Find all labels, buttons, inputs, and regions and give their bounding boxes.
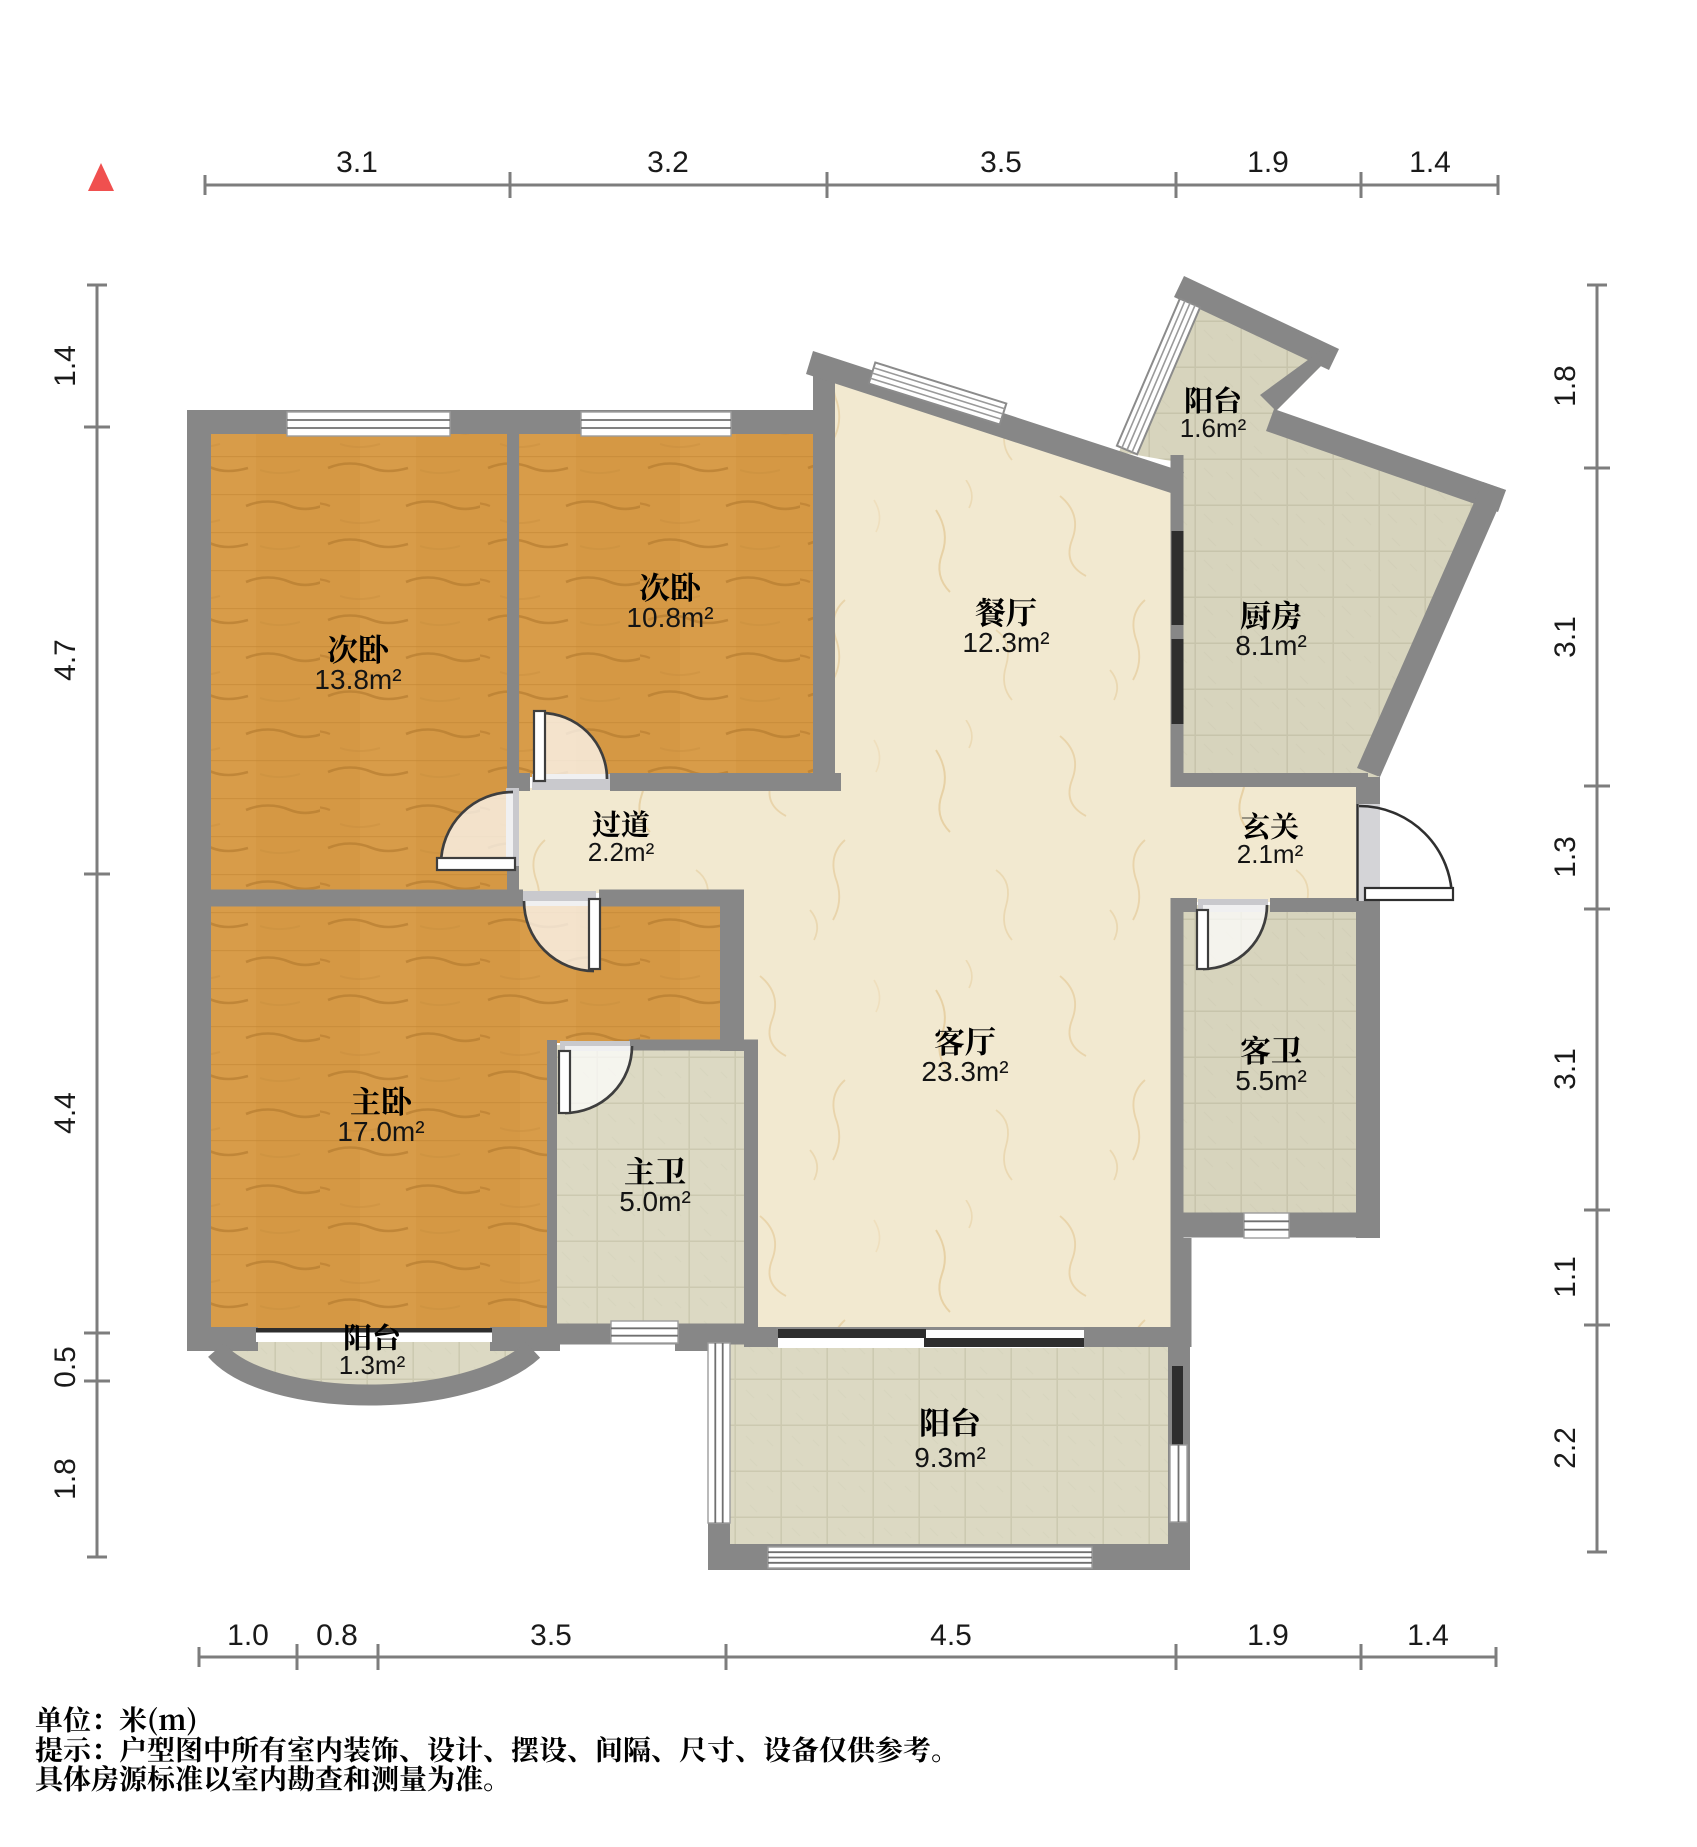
svg-text:3.5: 3.5 <box>530 1619 572 1652</box>
svg-text:1.3m²: 1.3m² <box>339 1350 406 1380</box>
svg-text:1.0: 1.0 <box>227 1619 269 1652</box>
svg-text:3.2: 3.2 <box>647 146 689 179</box>
svg-text:8.1m²: 8.1m² <box>1235 630 1307 661</box>
svg-text:0.5: 0.5 <box>49 1346 82 1388</box>
svg-text:1.4: 1.4 <box>49 345 82 387</box>
svg-text:0.8: 0.8 <box>316 1619 358 1652</box>
svg-text:5.5m²: 5.5m² <box>1235 1065 1307 1096</box>
svg-text:3.1: 3.1 <box>336 146 378 179</box>
svg-text:4.4: 4.4 <box>49 1092 82 1134</box>
svg-text:2.2m²: 2.2m² <box>588 837 655 867</box>
svg-text:4.5: 4.5 <box>930 1619 972 1652</box>
svg-text:1.8: 1.8 <box>49 1458 82 1500</box>
svg-text:23.3m²: 23.3m² <box>921 1056 1008 1087</box>
svg-text:3.1: 3.1 <box>1549 1048 1582 1090</box>
svg-text:1.9: 1.9 <box>1247 1619 1289 1652</box>
svg-text:3.5: 3.5 <box>980 146 1022 179</box>
svg-text:2.1m²: 2.1m² <box>1237 839 1304 869</box>
svg-text:2.2: 2.2 <box>1549 1427 1582 1469</box>
svg-text:4.7: 4.7 <box>49 639 82 681</box>
svg-text:1.6m²: 1.6m² <box>1180 413 1247 443</box>
svg-text:17.0m²: 17.0m² <box>337 1116 424 1147</box>
svg-text:1.4: 1.4 <box>1407 1619 1449 1652</box>
svg-text:12.3m²: 12.3m² <box>962 627 1049 658</box>
svg-text:1.8: 1.8 <box>1549 365 1582 407</box>
svg-text:10.8m²: 10.8m² <box>626 602 713 633</box>
svg-text:1.1: 1.1 <box>1549 1256 1582 1298</box>
svg-text:5.0m²: 5.0m² <box>619 1186 691 1217</box>
svg-text:1.9: 1.9 <box>1247 146 1289 179</box>
svg-text:1.4: 1.4 <box>1409 146 1451 179</box>
svg-text:1.3: 1.3 <box>1549 836 1582 878</box>
svg-text:3.1: 3.1 <box>1549 616 1582 658</box>
svg-text:9.3m²: 9.3m² <box>914 1442 986 1473</box>
svg-text:13.8m²: 13.8m² <box>314 664 401 695</box>
